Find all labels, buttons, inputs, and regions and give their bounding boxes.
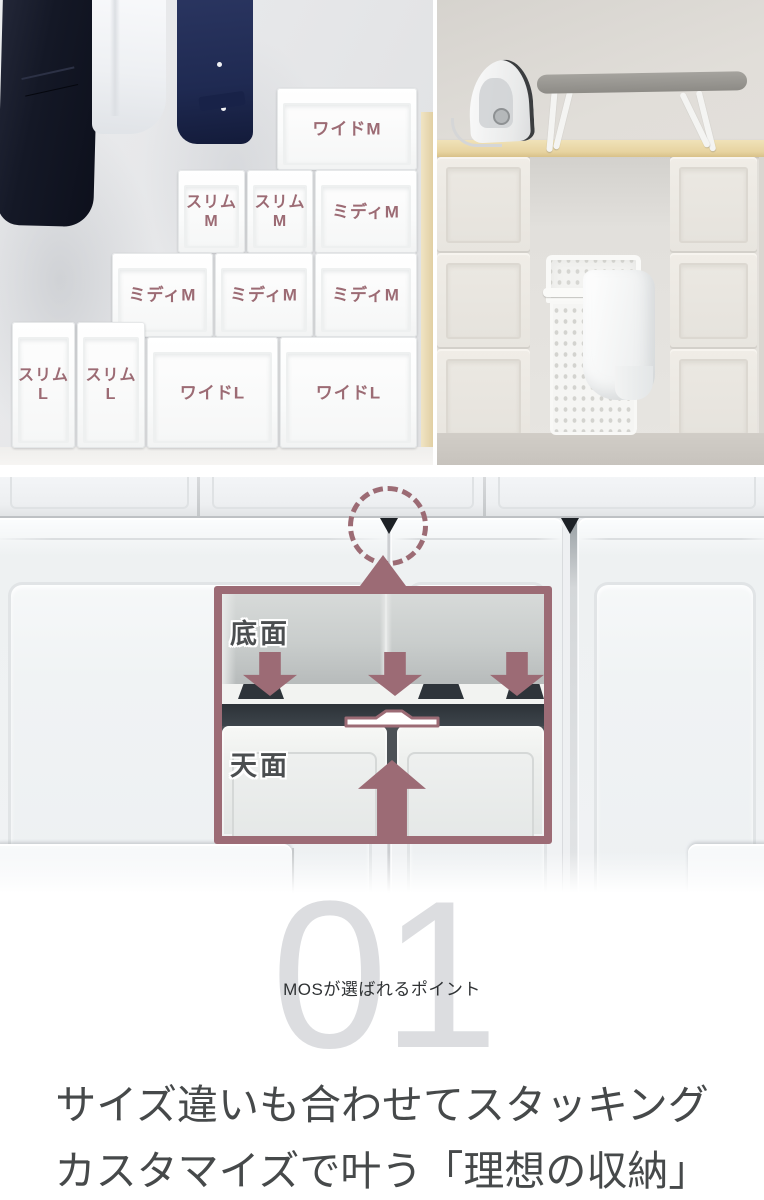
hanging-navy-coat [0, 0, 99, 227]
closet-photo: ワイドM スリムM スリムM ミディM ミディM [0, 0, 433, 465]
box-size-label: スリムL [12, 366, 75, 404]
box-gap [570, 518, 577, 900]
box-size-label: ミディM [112, 286, 213, 305]
storage-box-slim-m: スリムM [247, 170, 313, 253]
laundry-corner-photo [437, 0, 764, 465]
drawer-stack-right [670, 157, 757, 445]
shirt-button [211, 104, 216, 109]
wood-shelf-edge [421, 112, 433, 452]
section-heading: サイズ違いも合わせてスタッキング カスタマイズで叶う「理想の収納」 [0, 1072, 764, 1200]
drawer-stack-edge [759, 157, 764, 445]
storage-box-midi-m: ミディM [315, 170, 417, 253]
box-size-label: ミディM [215, 286, 313, 305]
storage-box-slim-m: スリムM [178, 170, 245, 253]
box-seam [197, 477, 200, 516]
box-size-label: ミディM [315, 286, 417, 305]
shirt-button [217, 62, 222, 67]
box-seam [483, 477, 486, 516]
stacking-diagram-inset: 底面 天面 [214, 586, 552, 844]
hanging-white-shirt [92, 0, 166, 134]
upper-box-panel [10, 477, 189, 509]
box-size-label: ワイドL [280, 383, 417, 402]
drawer-unit [437, 349, 530, 443]
storage-box-midi-m: ミディM [215, 253, 313, 337]
drawer-unit [437, 157, 530, 251]
heading-line-1: サイズ違いも合わせてスタッキング [0, 1072, 764, 1138]
interlock-ridge-icon [344, 708, 440, 728]
callout-pointer [360, 555, 406, 586]
storage-box-slim-l: スリムL [12, 322, 75, 448]
heading-line-2: カスタマイズで叶う「理想の収納」 [0, 1138, 764, 1200]
ironing-board [537, 71, 747, 94]
box-size-label: スリムM [178, 193, 245, 231]
storage-box-midi-m: ミディM [315, 253, 417, 337]
stack-joint-highlight-circle [348, 486, 428, 566]
stacking-closeup-photo: 底面 天面 [0, 477, 764, 900]
drawer-unit [437, 253, 530, 347]
bottom-notch [418, 684, 464, 699]
top-face-label: 天面 [230, 744, 290, 783]
stacked-box [578, 518, 764, 900]
box-joint-notch [561, 518, 579, 534]
iron-dial [493, 108, 510, 125]
hanging-navy-shirt [177, 0, 253, 144]
storage-box-wide-m: ワイドM [277, 88, 417, 170]
box-size-label: ミディM [315, 202, 417, 221]
upper-box-panel [212, 477, 474, 509]
floor [0, 447, 433, 465]
bottom-face-label: 底面 [230, 612, 290, 651]
floor [437, 433, 764, 465]
box-size-label: スリムM [247, 193, 313, 231]
box-top-face [397, 726, 544, 836]
point-tagline: MOSが選ばれるポイント [0, 975, 764, 1000]
white-towel [583, 270, 655, 400]
drawer-unit [670, 253, 757, 347]
drawer-unit [670, 157, 757, 251]
storage-box-wide-l: ワイドL [147, 337, 278, 448]
box-size-label: ワイドL [147, 383, 278, 402]
product-page: ワイドM スリムM スリムM ミディM ミディM [0, 0, 764, 1200]
drawer-stack-left [437, 157, 530, 445]
storage-box-wide-l: ワイドL [280, 337, 417, 448]
storage-box-slim-l: スリムL [77, 322, 145, 448]
box-size-label: ワイドM [277, 120, 417, 139]
box-size-label: スリムL [77, 366, 145, 404]
drawer-unit [670, 349, 757, 443]
photo-fade [0, 852, 764, 900]
shirt-button [221, 106, 226, 111]
upper-box-panel [498, 477, 756, 509]
